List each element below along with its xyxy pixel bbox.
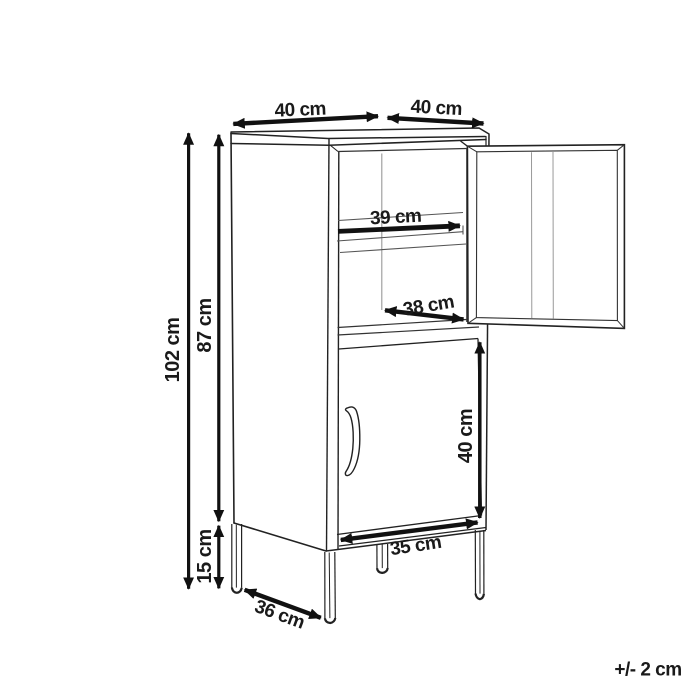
svg-text:40 cm: 40 cm [410, 97, 462, 120]
svg-text:15 cm: 15 cm [194, 529, 216, 583]
svg-text:87 cm: 87 cm [194, 298, 216, 352]
svg-text:39 cm: 39 cm [370, 206, 422, 230]
svg-text:+/- 2 cm: +/- 2 cm [614, 660, 681, 681]
svg-text:40 cm: 40 cm [274, 98, 326, 121]
svg-text:102 cm: 102 cm [162, 318, 184, 383]
svg-text:40 cm: 40 cm [455, 409, 477, 463]
